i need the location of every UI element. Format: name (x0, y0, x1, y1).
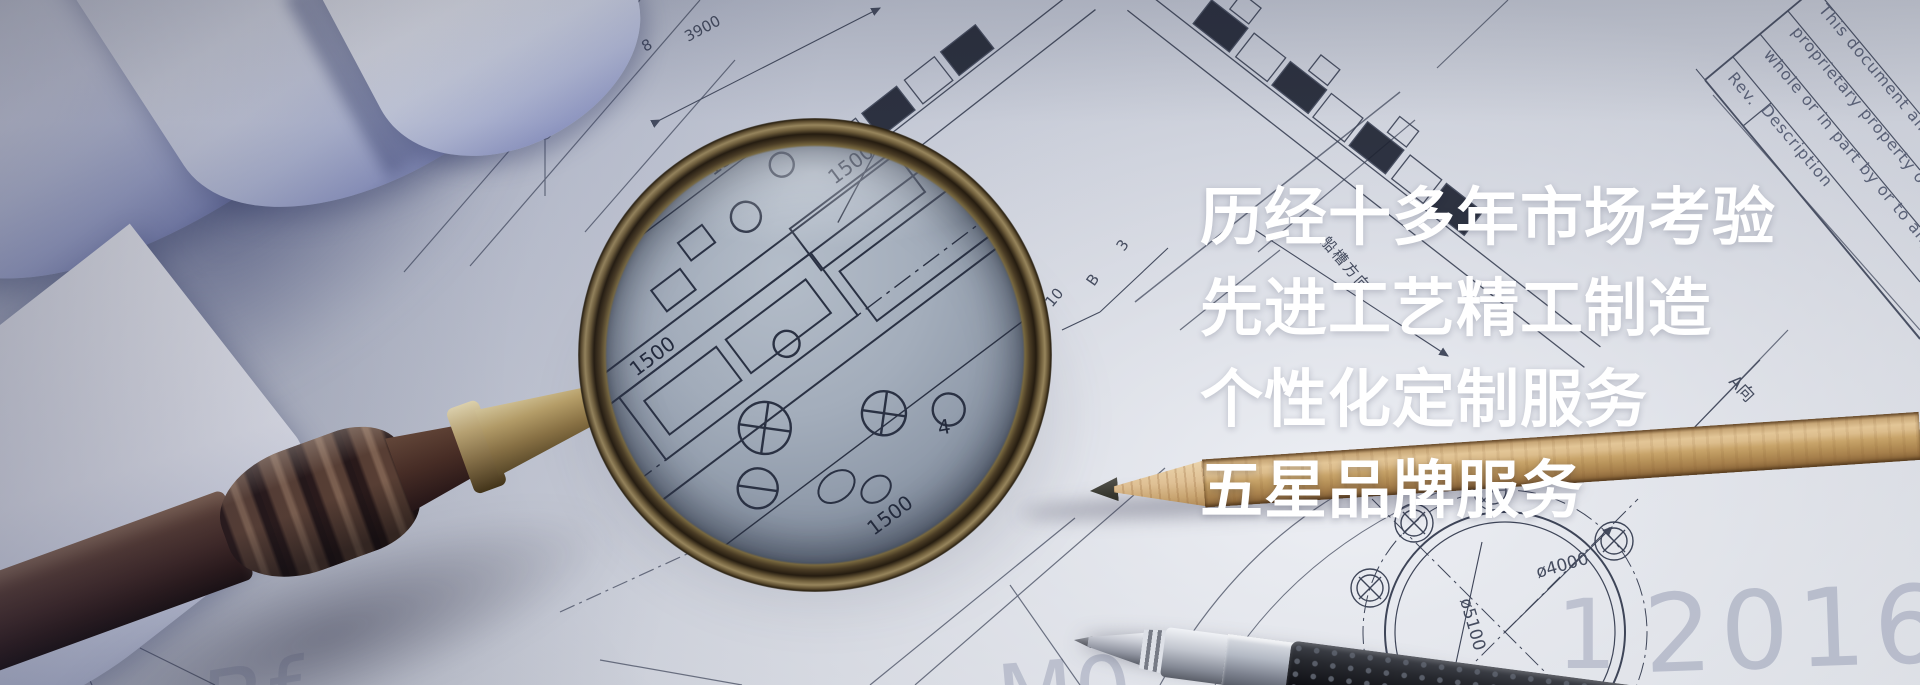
dim-4000: ø4000 (1534, 549, 1591, 583)
headline-block: 历经十多年市场考验 先进工艺精工制造 个性化定制服务 五星品牌服务 (1200, 186, 1776, 550)
headline-line-3: 个性化定制服务 (1200, 368, 1776, 432)
magnifier-lens: 1500 1500 1500 1500 1120 4 (578, 118, 1052, 592)
watermark-year: 2016— (1642, 558, 1920, 685)
pen-metal-cone (1086, 625, 1148, 666)
headline-line-1: 历经十多年市场考验 (1200, 186, 1776, 250)
pen-barrel (1221, 634, 1295, 685)
lens-bronze-rim (578, 118, 1052, 592)
pen-chrome-band (1160, 627, 1232, 685)
headline-line-4: 五星品牌服务 (1200, 459, 1776, 523)
dim-3900: 3900 (681, 12, 723, 46)
hero-banner: 2016— 1 M0 Bf (0, 0, 1920, 685)
watermark-partial-digit: 1 (1556, 579, 1617, 685)
headline-line-2: 先进工艺精工制造 (1200, 277, 1776, 341)
dim-3: 3 (1113, 236, 1133, 254)
titleblock-rev: Rev. (1724, 68, 1763, 109)
dim-8: 8 (638, 35, 655, 55)
pencil-sharpened-cone (1112, 458, 1211, 514)
